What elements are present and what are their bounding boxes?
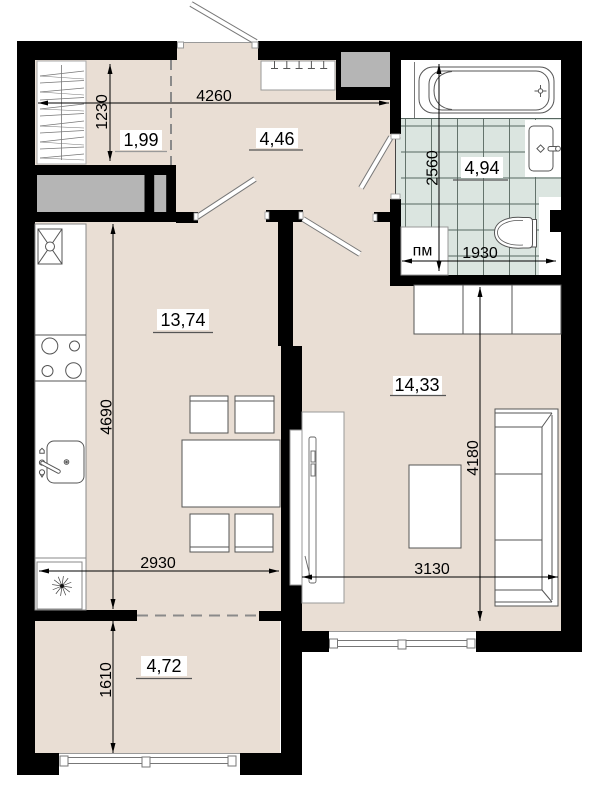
svg-text:4180: 4180 (465, 440, 482, 476)
svg-text:13,74: 13,74 (160, 310, 205, 330)
svg-text:4,94: 4,94 (464, 158, 499, 178)
svg-text:4260: 4260 (196, 88, 232, 105)
svg-text:1930: 1930 (462, 245, 498, 262)
svg-text:3130: 3130 (414, 561, 450, 578)
svg-text:2560: 2560 (425, 150, 442, 186)
svg-text:4,46: 4,46 (259, 129, 294, 149)
svg-text:14,33: 14,33 (394, 375, 439, 395)
svg-text:пм: пм (413, 243, 433, 260)
svg-text:2930: 2930 (140, 555, 176, 572)
svg-text:1610: 1610 (98, 662, 115, 698)
svg-text:4,72: 4,72 (146, 656, 181, 676)
svg-text:1230: 1230 (94, 94, 111, 130)
svg-text:1,99: 1,99 (123, 130, 158, 150)
svg-text:4690: 4690 (99, 399, 116, 435)
